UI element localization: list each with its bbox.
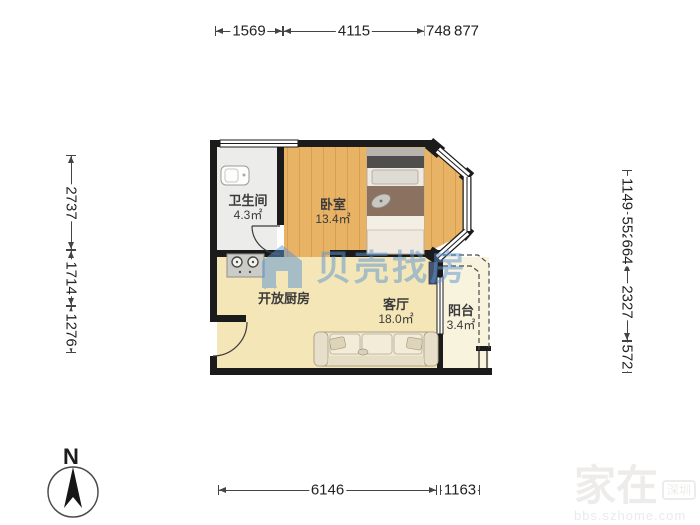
room-name: 卫生间	[228, 193, 267, 208]
dimension-left-2: 1714	[64, 250, 78, 306]
floorplan-page: 1569 4115 748 877 6146 1163 2737 1714 12…	[0, 0, 700, 525]
room-area: 3.4㎡	[447, 318, 476, 332]
room-label-balcony: 阳台 3.4㎡	[447, 303, 476, 332]
stove-icon	[227, 254, 264, 277]
dimension-top-3: 748	[425, 24, 452, 38]
dimension-bottom-2: 1163	[440, 483, 480, 497]
dimension-top-4: 877	[452, 24, 481, 38]
cabinet-icon	[429, 262, 437, 284]
dimension-top-2: 4115	[283, 24, 425, 38]
dim-label: 2737	[64, 184, 79, 221]
dimension-right-4: 2327	[620, 263, 634, 341]
dim-label: 877	[452, 24, 481, 39]
dim-label: 748	[424, 24, 453, 39]
compass-icon	[48, 467, 98, 517]
room-name: 阳台	[447, 303, 476, 318]
room-label-bathroom: 卫生间 4.3㎡	[228, 193, 267, 222]
sofa-icon	[314, 332, 438, 366]
compass-north-label: N	[63, 444, 79, 470]
bathroom-window-icon	[220, 140, 298, 147]
dim-label: 1569	[230, 24, 267, 39]
room-label-bedroom: 卧室 13.4㎡	[315, 197, 350, 226]
dim-label: 2327	[620, 283, 635, 320]
dimension-right-1: 1149	[620, 170, 634, 217]
bathtub-icon	[221, 166, 249, 185]
balcony-door-window-icon	[437, 277, 443, 334]
room-label-living: 客厅 18.0㎡	[378, 297, 413, 326]
dim-label: 572	[620, 342, 635, 371]
room-area: 13.4㎡	[315, 212, 350, 226]
dimension-left-3: 1276	[64, 306, 78, 353]
dim-label: 4115	[336, 24, 372, 39]
dimension-right-3: 664	[620, 240, 634, 263]
dim-label: 1163	[442, 483, 478, 498]
dim-label: 1714	[64, 259, 79, 296]
dim-label: 1149	[620, 175, 635, 211]
bed-icon	[367, 148, 424, 254]
floor-plan-drawing	[0, 0, 700, 525]
room-name: 开放厨房	[258, 291, 310, 306]
dim-label: 664	[620, 237, 635, 266]
room-area: 18.0㎡	[378, 312, 413, 326]
dimension-bottom-1: 6146	[218, 483, 437, 497]
dim-label: 1276	[64, 311, 79, 348]
dimension-left-1: 2737	[64, 155, 78, 250]
dimension-right-5: 572	[620, 341, 634, 373]
room-name: 卧室	[315, 197, 350, 212]
room-label-kitchen: 开放厨房	[258, 291, 310, 306]
room-area: 4.3㎡	[228, 208, 267, 222]
room-name: 客厅	[378, 297, 413, 312]
dimension-top-1: 1569	[215, 24, 283, 38]
dim-label: 6146	[309, 483, 346, 498]
